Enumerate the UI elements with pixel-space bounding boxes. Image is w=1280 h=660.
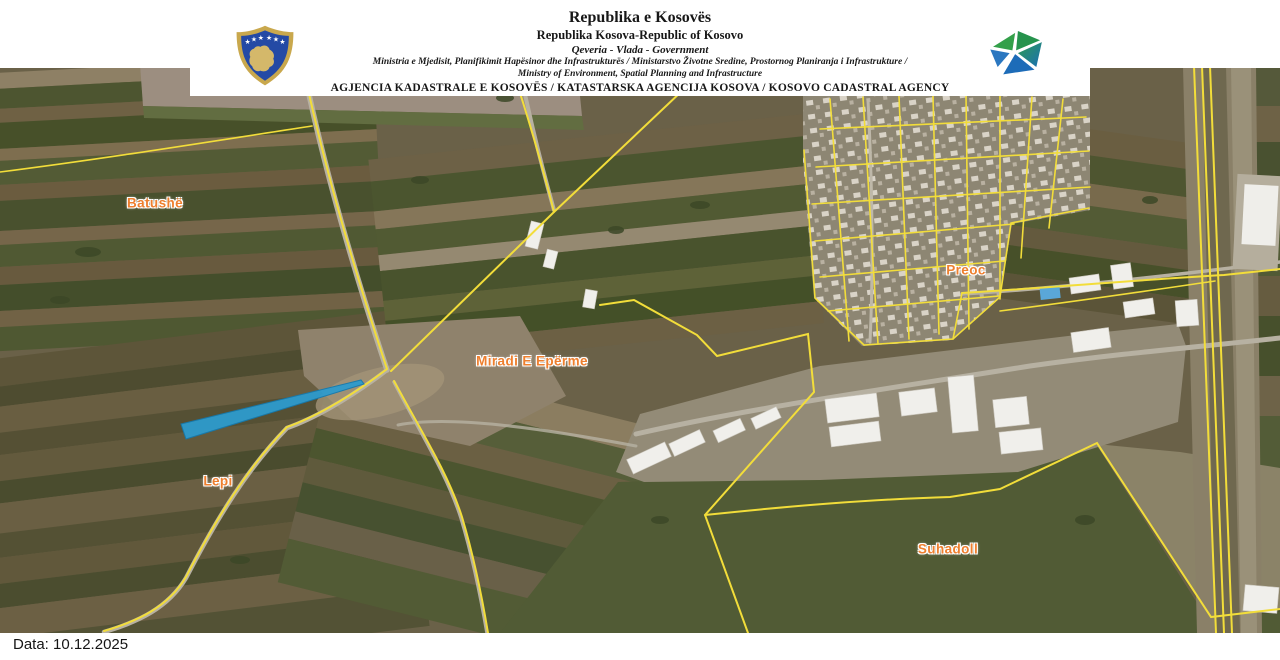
banner-agency-line: AGJENCIA KADASTRALE E KOSOVËS / KATASTAR… [308,82,972,94]
banner-ministry-line1: Ministria e Mjedisit, Planifikimit Hapës… [308,57,972,68]
banner-text: Republika e Kosovës Republika Kosova-Rep… [308,0,972,94]
kosovo-coat-of-arms-icon: ★★★ ★★★ [232,23,298,89]
svg-text:★: ★ [245,38,251,46]
date-text: Data: 10.12.2025 [13,636,128,653]
map-label-preoc: Preoc [946,263,986,278]
map-label-batushe: Batushë [127,196,183,211]
footer-bar: Data: 10.12.2025 [0,633,1280,660]
map-label-miradi: Miradi E Epërme [476,354,588,369]
banner-title-albanian: Republika e Kosovës [308,9,972,27]
svg-text:★: ★ [258,34,264,42]
map-label-suhadoll: Suhadoll [918,542,978,557]
svg-text:★: ★ [279,38,285,46]
banner-government-line: Qeveria - Vlada - Government [308,44,972,56]
svg-text:★: ★ [251,35,257,43]
banner-ministry-line2: Ministry of Environment, Spatial Plannin… [308,69,972,80]
svg-text:★: ★ [273,35,279,43]
cadastral-agency-logo-icon [982,24,1052,86]
map-label-lepi: Lepi [203,474,232,489]
banner-title-translations: Republika Kosova-Republic of Kosovo [308,28,972,43]
cadastral-map-export: Batushë Preoc Miradi E Epërme Lepi Suhad… [0,0,1280,660]
svg-text:★: ★ [266,34,272,42]
agency-banner: ★★★ ★★★ Republika e Kosovës Republika Ko… [190,0,1090,96]
